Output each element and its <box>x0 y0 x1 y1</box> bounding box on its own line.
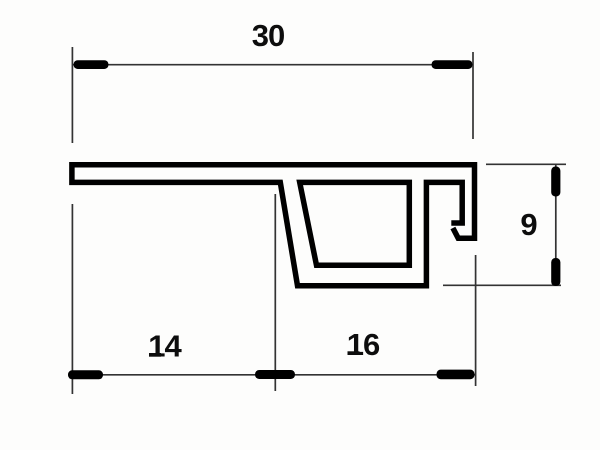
svg-text:16: 16 <box>347 327 380 362</box>
svg-text:30: 30 <box>252 18 284 53</box>
svg-text:14: 14 <box>148 329 182 364</box>
svg-text:9: 9 <box>520 207 537 242</box>
